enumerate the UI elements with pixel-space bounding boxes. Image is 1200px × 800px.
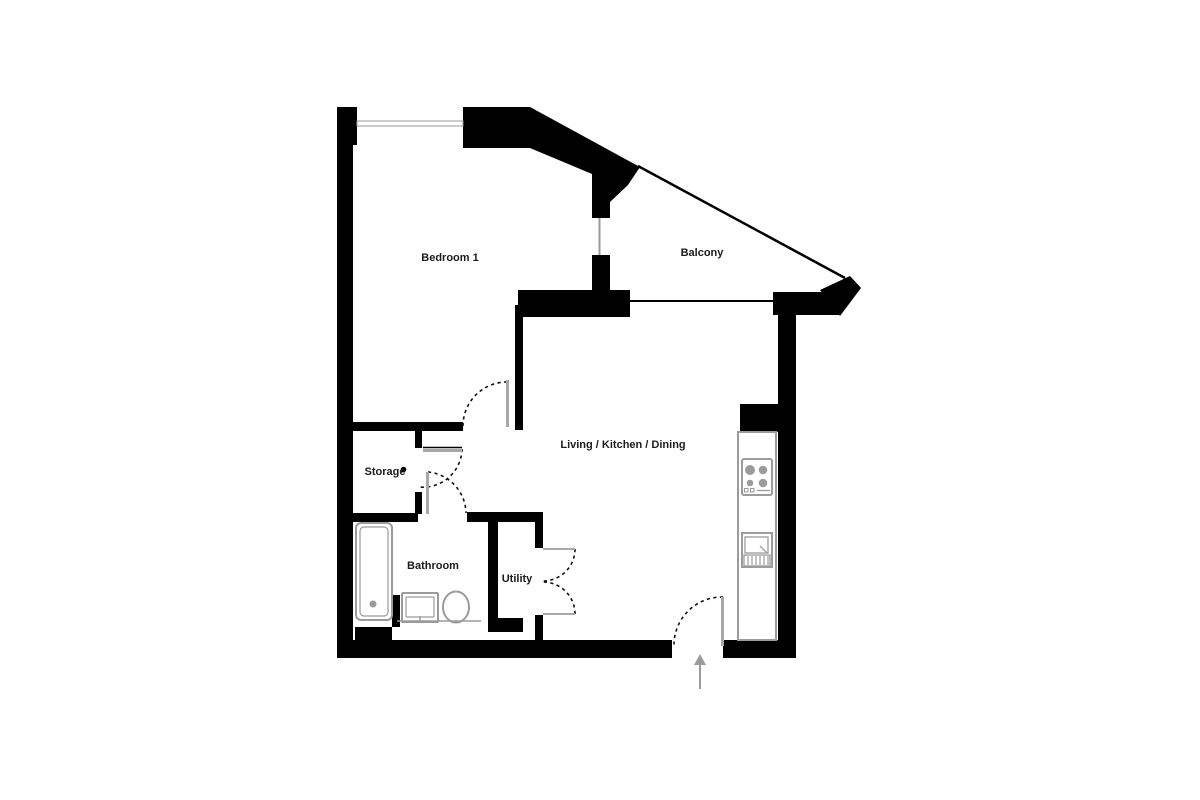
bottom-wall-left: [337, 640, 672, 658]
room-label-living-kitchen-dining: Living / Kitchen / Dining: [560, 439, 685, 451]
room-label-balcony: Balcony: [681, 247, 725, 259]
balcony-door-lower-pier: [592, 255, 610, 292]
utility-top-wall: [467, 512, 543, 522]
kitchen-counter: [738, 432, 776, 640]
balcony-railing: [638, 166, 845, 278]
floor-plan-page: Bedroom 1BalconyLiving / Kitchen / Dinin…: [0, 0, 1200, 800]
storage-wall-lower-stub: [415, 492, 422, 514]
hob-burner-bl: [747, 480, 754, 487]
bathtub-pier: [355, 627, 392, 640]
utility-door-bottom-swing-arc: [543, 582, 575, 614]
storage-door-swing-arc: [419, 449, 462, 487]
top-wall: [463, 107, 530, 148]
balcony-wall-left: [518, 290, 630, 317]
left-outer-wall: [337, 140, 353, 658]
hob-burner-tr: [759, 466, 768, 475]
entrance-door-leaf: [721, 597, 724, 646]
utility-right-wall-lower: [535, 615, 543, 642]
left-wall-top-block: [337, 107, 357, 145]
room-label-utility: Utility: [502, 573, 533, 585]
storage-door-leaf: [423, 449, 462, 452]
bedroom-bottom-wall: [353, 422, 463, 431]
utility-door-top-swing-arc: [543, 549, 575, 581]
entrance-arrow-head: [694, 654, 706, 665]
balcony-door-upper-pier: [592, 174, 610, 218]
bathroom-door-leaf: [426, 472, 429, 514]
utility-right-wall-upper: [535, 522, 543, 548]
room-label-bathroom: Bathroom: [407, 560, 459, 572]
bedroom-living-divider: [515, 305, 523, 430]
toilet-bowl: [443, 592, 469, 623]
bathtub-drain: [370, 601, 377, 608]
bathroom-door-swing-arc: [428, 472, 466, 513]
bedroom-door-swing-arc: [463, 382, 507, 426]
right-outer-wall: [778, 315, 796, 658]
hob-burner-tl: [745, 465, 755, 475]
hob-burner-br: [759, 479, 768, 488]
bedroom-window: [357, 121, 463, 126]
room-label-storage: Storage: [365, 466, 406, 478]
storage-wall-upper-stub: [415, 431, 422, 448]
tub-basin-stub: [392, 595, 400, 627]
basin-inner: [406, 597, 434, 617]
bathroom-top-wall: [353, 513, 418, 522]
entrance-door-swing-arc: [674, 597, 723, 645]
utility-bottom-wall: [488, 618, 523, 632]
room-label-bedroom-1: Bedroom 1: [421, 252, 478, 264]
floor-plan-svg: Bedroom 1BalconyLiving / Kitchen / Dinin…: [0, 0, 1200, 800]
diagonal-wall-band: [530, 107, 640, 185]
bottom-wall-right: [723, 640, 796, 658]
utility-left-wall: [488, 522, 498, 620]
bedroom-door-leaf: [506, 380, 509, 427]
